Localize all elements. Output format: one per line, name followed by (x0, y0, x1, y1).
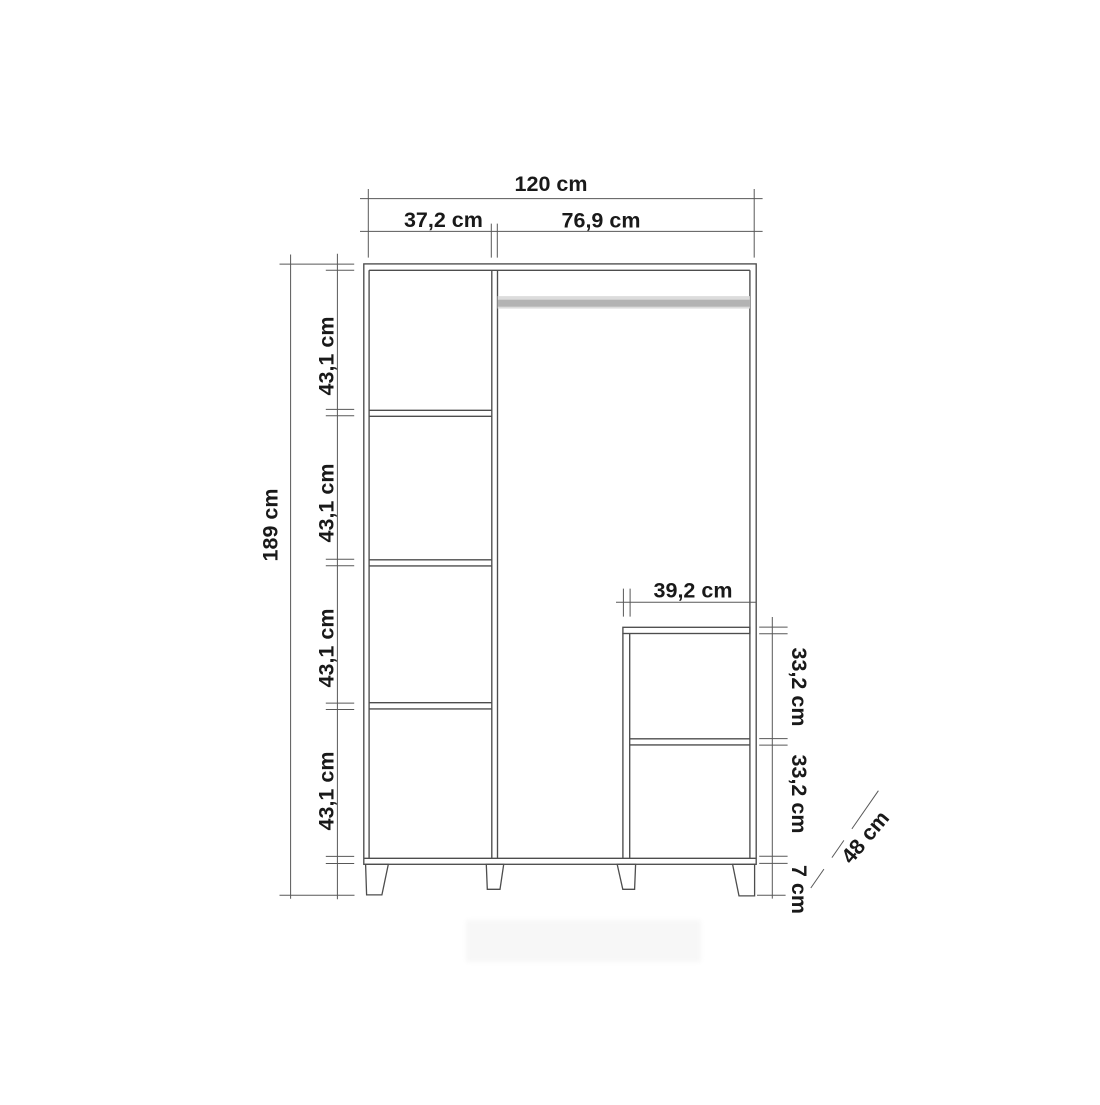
svg-text:7 cm: 7 cm (787, 865, 811, 914)
svg-text:33,2 cm: 33,2 cm (787, 755, 811, 834)
svg-text:43,1 cm: 43,1 cm (315, 609, 339, 688)
svg-text:43,1 cm: 43,1 cm (315, 464, 339, 543)
svg-text:76,9 cm: 76,9 cm (562, 209, 641, 233)
svg-text:33,2 cm: 33,2 cm (787, 648, 811, 727)
svg-text:39,2 cm: 39,2 cm (654, 579, 733, 603)
svg-text:43,1 cm: 43,1 cm (315, 317, 339, 396)
svg-text:43,1 cm: 43,1 cm (315, 752, 339, 831)
svg-text:120 cm: 120 cm (515, 172, 588, 196)
svg-text:189 cm: 189 cm (258, 489, 282, 562)
svg-text:37,2 cm: 37,2 cm (404, 208, 483, 232)
